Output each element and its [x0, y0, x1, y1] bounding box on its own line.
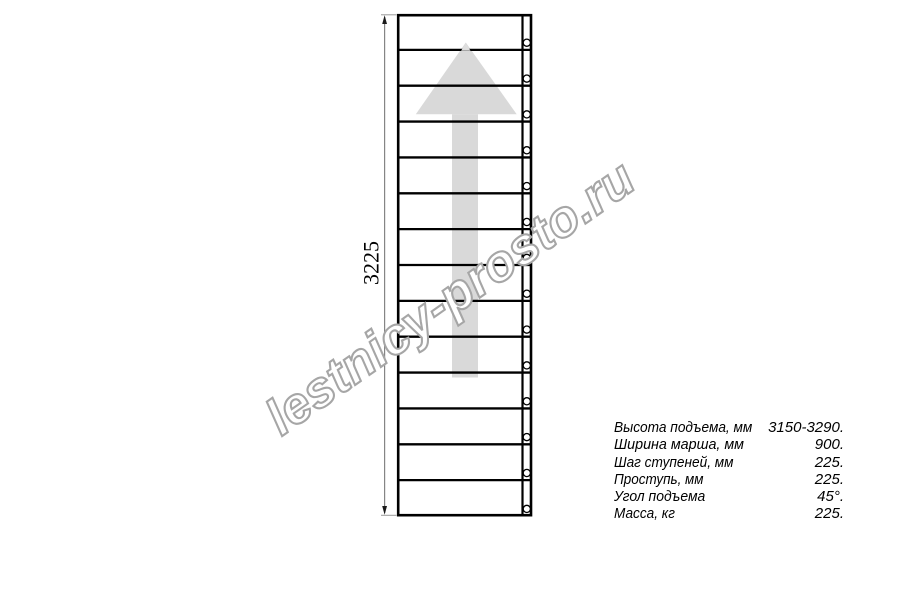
svg-text:3225: 3225 — [359, 241, 384, 285]
